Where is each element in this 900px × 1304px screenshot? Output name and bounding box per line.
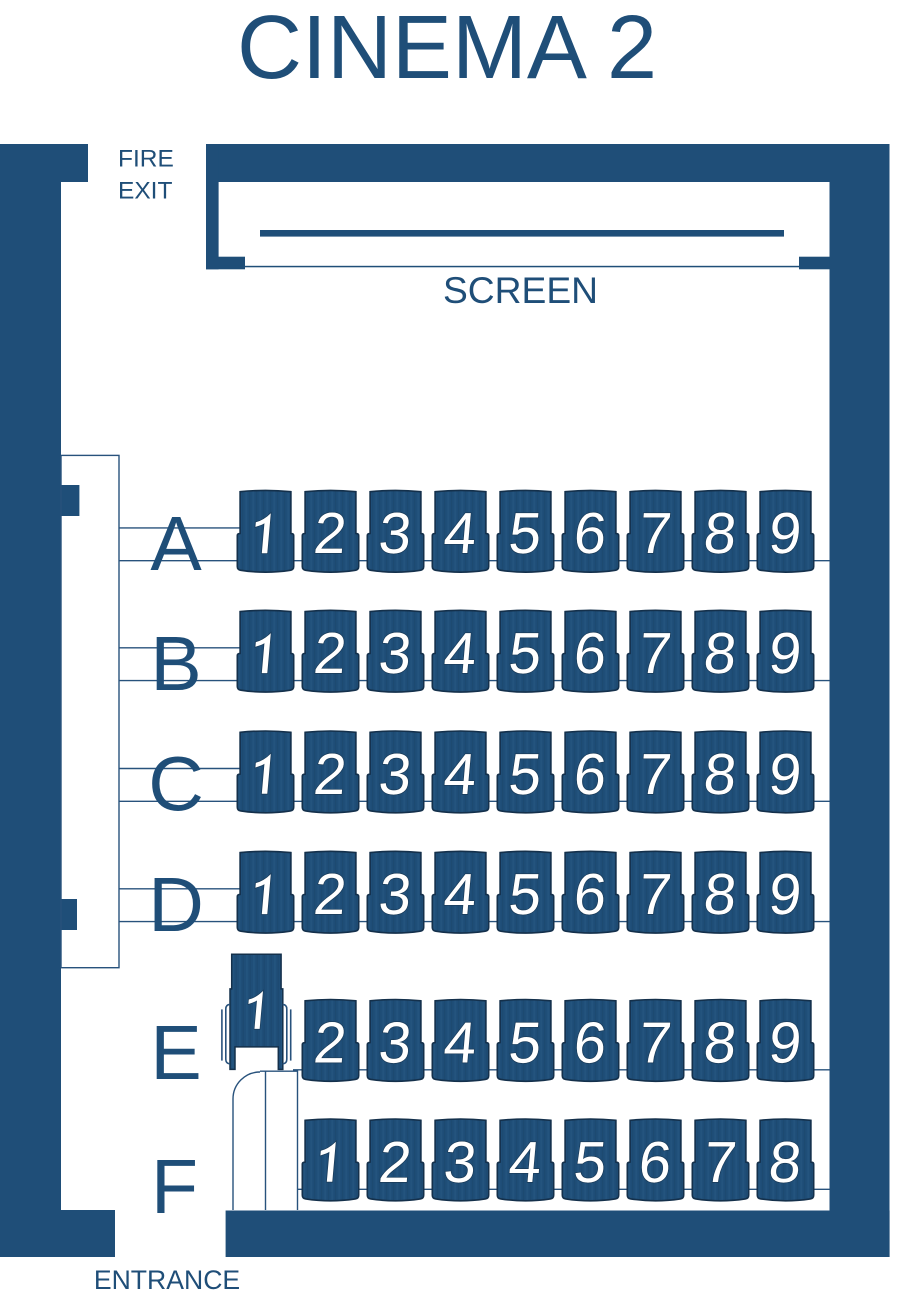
svg-text:5: 5 bbox=[506, 742, 544, 807]
svg-text:B: B bbox=[150, 621, 201, 707]
svg-text:2: 2 bbox=[376, 1130, 414, 1195]
svg-text:C: C bbox=[148, 742, 204, 828]
svg-text:8: 8 bbox=[701, 862, 739, 927]
svg-text:2: 2 bbox=[311, 742, 349, 807]
svg-text:3: 3 bbox=[376, 742, 414, 807]
svg-text:8: 8 bbox=[701, 742, 739, 807]
svg-text:4: 4 bbox=[441, 1010, 479, 1075]
svg-text:8: 8 bbox=[701, 1010, 739, 1075]
svg-text:7: 7 bbox=[636, 501, 674, 566]
svg-text:9: 9 bbox=[766, 862, 804, 927]
svg-text:2: 2 bbox=[311, 621, 349, 686]
svg-text:6: 6 bbox=[571, 1010, 609, 1075]
svg-text:5: 5 bbox=[506, 501, 544, 566]
svg-text:6: 6 bbox=[571, 862, 609, 927]
svg-text:2: 2 bbox=[311, 1010, 349, 1075]
svg-text:CINEMA 2: CINEMA 2 bbox=[237, 0, 657, 98]
svg-text:A: A bbox=[150, 501, 202, 587]
svg-text:EXIT: EXIT bbox=[118, 177, 172, 204]
svg-text:3: 3 bbox=[441, 1130, 479, 1195]
svg-text:8: 8 bbox=[701, 621, 739, 686]
svg-text:FIRE: FIRE bbox=[118, 146, 174, 173]
svg-text:4: 4 bbox=[441, 742, 479, 807]
svg-text:9: 9 bbox=[766, 742, 804, 807]
svg-text:4: 4 bbox=[506, 1130, 544, 1195]
svg-text:ENTRANCE: ENTRANCE bbox=[94, 1265, 240, 1295]
svg-text:D: D bbox=[148, 862, 204, 948]
svg-text:5: 5 bbox=[571, 1130, 609, 1195]
svg-text:3: 3 bbox=[376, 501, 414, 566]
svg-text:5: 5 bbox=[506, 1010, 544, 1075]
svg-text:8: 8 bbox=[701, 501, 739, 566]
svg-text:7: 7 bbox=[636, 621, 674, 686]
svg-text:8: 8 bbox=[766, 1130, 804, 1195]
svg-text:7: 7 bbox=[701, 1130, 739, 1195]
svg-text:7: 7 bbox=[636, 742, 674, 807]
svg-text:E: E bbox=[150, 1010, 201, 1096]
svg-text:4: 4 bbox=[441, 862, 479, 927]
svg-text:7: 7 bbox=[636, 1010, 674, 1075]
svg-text:6: 6 bbox=[636, 1130, 674, 1195]
svg-text:6: 6 bbox=[571, 742, 609, 807]
svg-text:6: 6 bbox=[571, 621, 609, 686]
svg-text:4: 4 bbox=[441, 501, 479, 566]
svg-text:5: 5 bbox=[506, 862, 544, 927]
svg-text:4: 4 bbox=[441, 621, 479, 686]
svg-text:2: 2 bbox=[311, 862, 349, 927]
svg-text:3: 3 bbox=[376, 621, 414, 686]
svg-text:6: 6 bbox=[571, 501, 609, 566]
svg-text:3: 3 bbox=[376, 1010, 414, 1075]
svg-text:F: F bbox=[151, 1144, 198, 1230]
svg-text:9: 9 bbox=[766, 501, 804, 566]
svg-text:2: 2 bbox=[311, 501, 349, 566]
svg-text:SCREEN: SCREEN bbox=[443, 269, 598, 311]
svg-text:5: 5 bbox=[506, 621, 544, 686]
svg-text:9: 9 bbox=[766, 621, 804, 686]
svg-text:3: 3 bbox=[376, 862, 414, 927]
svg-text:9: 9 bbox=[766, 1010, 804, 1075]
svg-text:7: 7 bbox=[636, 862, 674, 927]
